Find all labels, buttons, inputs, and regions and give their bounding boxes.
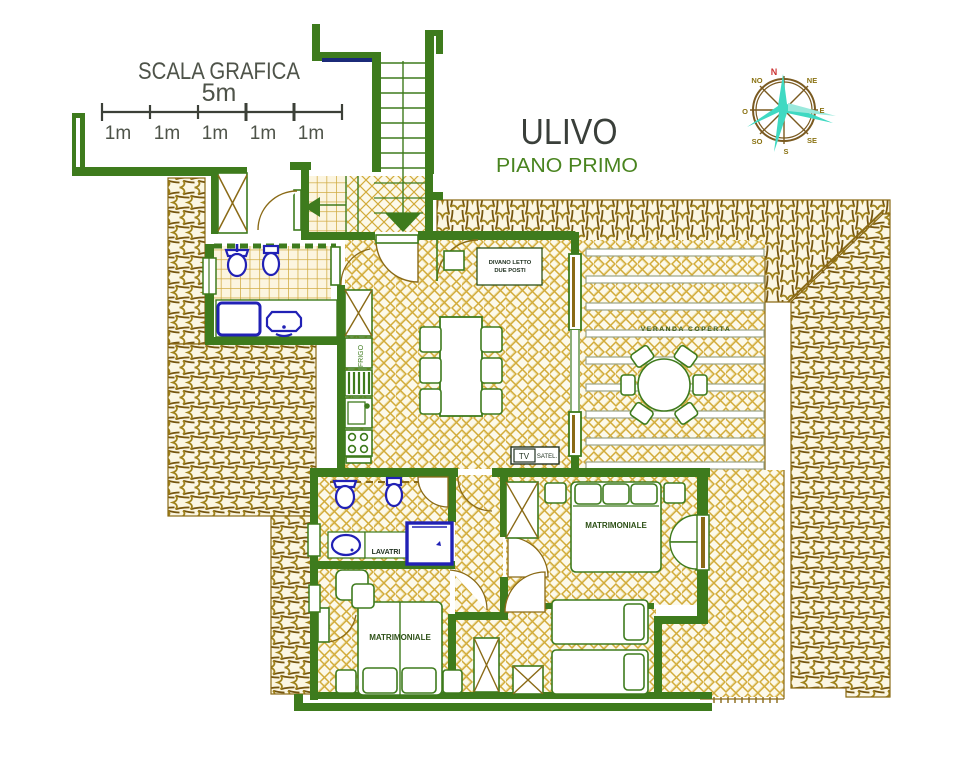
svg-text:1m: 1m: [154, 123, 180, 144]
svg-text:SE: SE: [807, 136, 817, 145]
svg-text:FRIGO: FRIGO: [358, 344, 365, 367]
svg-text:DUE POSTI: DUE POSTI: [494, 268, 526, 274]
svg-text:MATRIMONIALE: MATRIMONIALE: [369, 633, 431, 642]
svg-text:LAVATRI: LAVATRI: [372, 549, 401, 556]
svg-text:1m: 1m: [250, 123, 276, 144]
svg-text:DIVANO LETTO: DIVANO LETTO: [489, 260, 532, 266]
svg-text:SO: SO: [752, 137, 763, 146]
svg-text:N: N: [771, 67, 778, 77]
svg-text:E: E: [819, 106, 824, 115]
svg-text:1m: 1m: [105, 123, 131, 144]
svg-text:NE: NE: [807, 76, 817, 85]
svg-text:TV: TV: [519, 452, 530, 461]
svg-text:PIANO PRIMO: PIANO PRIMO: [496, 155, 638, 177]
svg-text:ULIVO: ULIVO: [521, 111, 618, 152]
svg-text:VERANDA COPERTA: VERANDA COPERTA: [641, 326, 731, 333]
svg-text:MATRIMONIALE: MATRIMONIALE: [585, 521, 647, 530]
svg-text:1m: 1m: [298, 123, 324, 144]
svg-text:5m: 5m: [202, 79, 237, 107]
svg-text:SATEL.: SATEL.: [537, 454, 558, 460]
svg-text:S: S: [783, 147, 788, 156]
svg-text:O: O: [742, 107, 748, 116]
svg-text:1m: 1m: [202, 123, 228, 144]
svg-text:NO: NO: [751, 76, 762, 85]
